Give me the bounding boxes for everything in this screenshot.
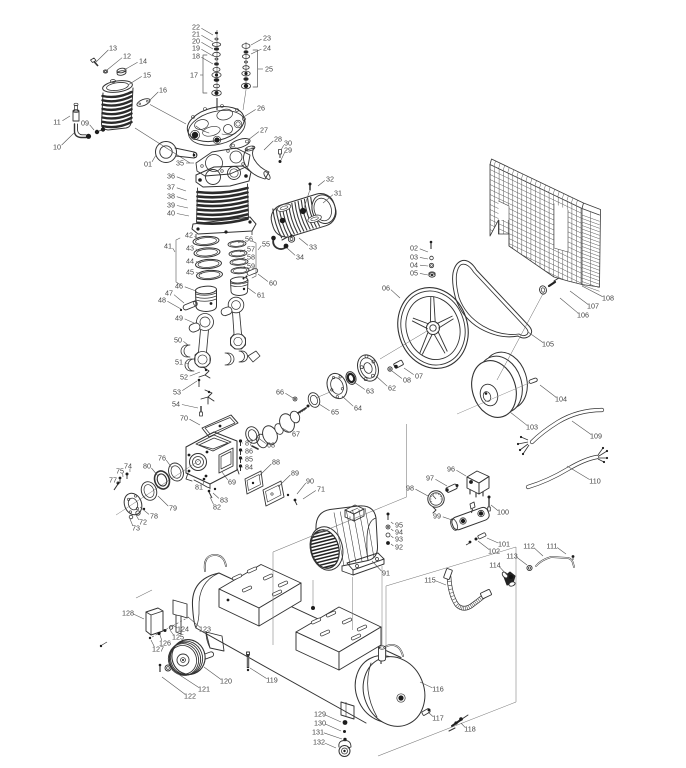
svg-text:78: 78 <box>150 512 158 521</box>
svg-text:104: 104 <box>555 395 567 404</box>
svg-text:82: 82 <box>213 503 221 512</box>
svg-text:29: 29 <box>284 146 292 155</box>
svg-text:107: 107 <box>587 302 599 311</box>
svg-text:16: 16 <box>159 86 167 95</box>
svg-text:47: 47 <box>165 289 173 298</box>
svg-text:64: 64 <box>354 404 362 413</box>
svg-text:123: 123 <box>199 625 211 634</box>
svg-text:117: 117 <box>432 714 443 723</box>
svg-text:106: 106 <box>577 311 589 320</box>
svg-text:24: 24 <box>263 44 271 53</box>
svg-text:70: 70 <box>180 414 188 423</box>
svg-text:41: 41 <box>164 242 172 251</box>
svg-text:15: 15 <box>143 71 151 80</box>
svg-text:68: 68 <box>267 441 275 450</box>
svg-text:76: 76 <box>158 454 166 463</box>
svg-text:132: 132 <box>313 738 325 747</box>
svg-text:08: 08 <box>403 376 411 385</box>
svg-text:56: 56 <box>245 235 253 244</box>
svg-text:114: 114 <box>489 561 500 570</box>
svg-text:12: 12 <box>123 52 131 61</box>
svg-text:75: 75 <box>116 467 124 476</box>
svg-text:52: 52 <box>180 373 188 382</box>
svg-text:73: 73 <box>132 524 140 533</box>
svg-text:33: 33 <box>309 243 317 252</box>
svg-text:103: 103 <box>526 423 538 432</box>
svg-text:125: 125 <box>172 633 184 642</box>
svg-text:23: 23 <box>263 34 271 43</box>
svg-text:122: 122 <box>184 692 196 701</box>
svg-text:110: 110 <box>589 477 600 486</box>
svg-text:36: 36 <box>167 172 175 181</box>
svg-text:28: 28 <box>274 135 282 144</box>
svg-text:59: 59 <box>247 262 255 271</box>
svg-text:113: 113 <box>506 552 517 561</box>
svg-text:49: 49 <box>175 314 183 323</box>
svg-text:37: 37 <box>167 183 175 192</box>
svg-text:98: 98 <box>406 484 414 493</box>
svg-text:61: 61 <box>257 291 265 300</box>
svg-text:105: 105 <box>542 340 554 349</box>
svg-text:108: 108 <box>602 294 614 303</box>
svg-text:13: 13 <box>109 44 117 53</box>
svg-text:83: 83 <box>220 496 228 505</box>
svg-text:62: 62 <box>388 384 396 393</box>
svg-text:42: 42 <box>185 231 193 240</box>
svg-text:66: 66 <box>276 388 284 397</box>
svg-text:40: 40 <box>167 209 175 218</box>
svg-text:02: 02 <box>410 244 418 253</box>
svg-text:80: 80 <box>143 462 151 471</box>
svg-text:130: 130 <box>314 719 326 728</box>
svg-text:121: 121 <box>198 685 210 694</box>
svg-text:99: 99 <box>433 512 441 521</box>
svg-text:27: 27 <box>260 126 268 135</box>
svg-text:72: 72 <box>139 518 147 527</box>
svg-text:118: 118 <box>464 725 475 734</box>
svg-text:60: 60 <box>269 279 277 288</box>
svg-text:53: 53 <box>173 388 181 397</box>
svg-text:51: 51 <box>175 358 183 367</box>
svg-text:05: 05 <box>410 269 418 278</box>
svg-text:91: 91 <box>382 569 390 578</box>
svg-text:115: 115 <box>424 576 435 585</box>
svg-text:119: 119 <box>266 676 277 685</box>
svg-text:112: 112 <box>523 542 534 551</box>
svg-text:131: 131 <box>312 728 324 737</box>
svg-text:45: 45 <box>186 268 194 277</box>
svg-text:58: 58 <box>247 253 255 262</box>
svg-text:128: 128 <box>122 609 134 618</box>
svg-text:14: 14 <box>139 57 147 66</box>
svg-text:71: 71 <box>317 485 325 494</box>
svg-text:100: 100 <box>497 508 509 517</box>
svg-text:89: 89 <box>291 469 299 478</box>
svg-text:07: 07 <box>415 372 423 381</box>
svg-text:63: 63 <box>366 387 374 396</box>
svg-text:81: 81 <box>195 483 203 492</box>
svg-text:18: 18 <box>192 52 200 61</box>
svg-text:77: 77 <box>109 476 117 485</box>
svg-text:67: 67 <box>292 430 300 439</box>
svg-text:06: 06 <box>382 284 390 293</box>
svg-text:79: 79 <box>169 504 177 513</box>
svg-text:65: 65 <box>331 408 339 417</box>
svg-text:111: 111 <box>547 542 558 551</box>
svg-text:84: 84 <box>245 463 253 472</box>
svg-text:38: 38 <box>167 192 175 201</box>
svg-text:17: 17 <box>190 71 198 80</box>
svg-text:109: 109 <box>590 432 602 441</box>
svg-text:96: 96 <box>447 465 455 474</box>
svg-text:34: 34 <box>296 253 304 262</box>
svg-text:01: 01 <box>144 160 152 169</box>
svg-text:44: 44 <box>186 257 194 266</box>
svg-text:129: 129 <box>314 710 326 719</box>
svg-text:127: 127 <box>152 645 164 654</box>
svg-text:120: 120 <box>220 677 232 686</box>
svg-text:09: 09 <box>81 119 89 128</box>
svg-text:25: 25 <box>265 65 273 74</box>
svg-text:102: 102 <box>488 547 500 556</box>
svg-text:11: 11 <box>53 118 60 127</box>
svg-text:10: 10 <box>53 143 61 152</box>
svg-text:90: 90 <box>306 477 314 486</box>
svg-text:92: 92 <box>395 543 403 552</box>
svg-text:54: 54 <box>172 400 180 409</box>
svg-text:50: 50 <box>174 336 182 345</box>
svg-text:88: 88 <box>272 458 280 467</box>
svg-text:43: 43 <box>186 244 194 253</box>
svg-text:35: 35 <box>176 159 184 168</box>
svg-text:69: 69 <box>228 478 236 487</box>
svg-text:46: 46 <box>175 282 183 291</box>
svg-text:97: 97 <box>426 474 434 483</box>
svg-text:55: 55 <box>262 240 270 249</box>
svg-text:116: 116 <box>432 685 443 694</box>
svg-text:48: 48 <box>158 296 166 305</box>
svg-text:26: 26 <box>257 104 265 113</box>
svg-text:74: 74 <box>124 462 132 471</box>
svg-text:31: 31 <box>334 189 342 198</box>
svg-text:32: 32 <box>326 175 334 184</box>
